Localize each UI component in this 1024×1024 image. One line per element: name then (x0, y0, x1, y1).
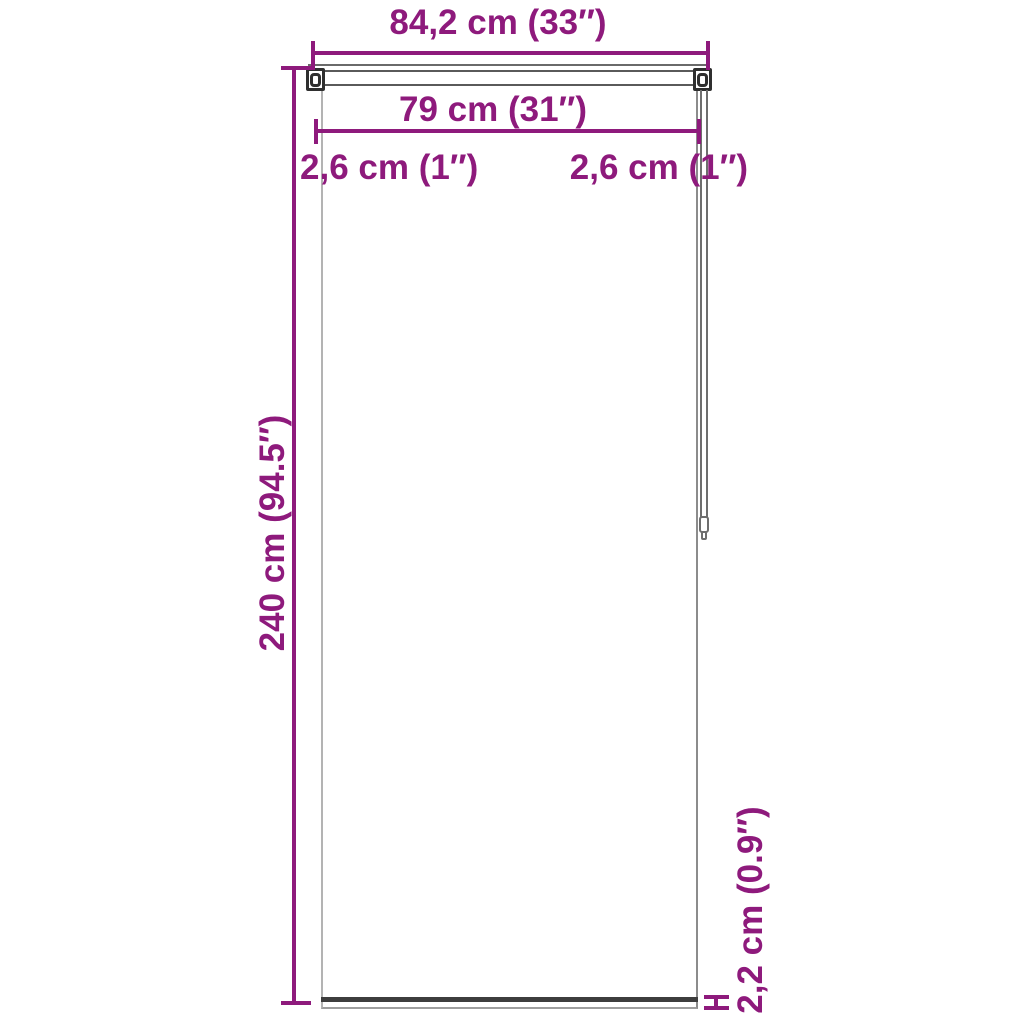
bracket-cap-right (697, 73, 708, 87)
total-width-dimension-line (311, 51, 710, 55)
chain-connector-tip (701, 531, 707, 540)
blind-fabric-panel (321, 88, 698, 1009)
roller-tube (322, 70, 696, 86)
fabric-width-dimension-line (315, 129, 701, 133)
height-tick-top (281, 66, 311, 70)
fabric-width-tick-right (697, 119, 701, 144)
height-label: 240 cm (94.5″) (254, 413, 294, 653)
bottom-bar-tick-connector (714, 995, 718, 1010)
headrail-top-line (308, 64, 710, 66)
total-width-tick-left (311, 41, 315, 70)
height-tick-bottom (281, 1001, 311, 1005)
bottom-weight-bar (321, 997, 698, 1002)
right-offset-label: 2,6 cm (1″) (548, 149, 748, 188)
left-offset-label: 2,6 cm (1″) (300, 149, 520, 188)
total-width-tick-right (706, 41, 710, 70)
total-width-label: 84,2 cm (33″) (298, 4, 698, 43)
fabric-width-label: 79 cm (31″) (293, 91, 693, 130)
bracket-cap-left (310, 73, 321, 87)
bottom-bar-label: 2,2 cm (0.9″) (732, 806, 774, 1014)
dimension-diagram: 84,2 cm (33″) 79 cm (31″) 2,6 cm (1″) 2,… (0, 0, 1024, 1024)
